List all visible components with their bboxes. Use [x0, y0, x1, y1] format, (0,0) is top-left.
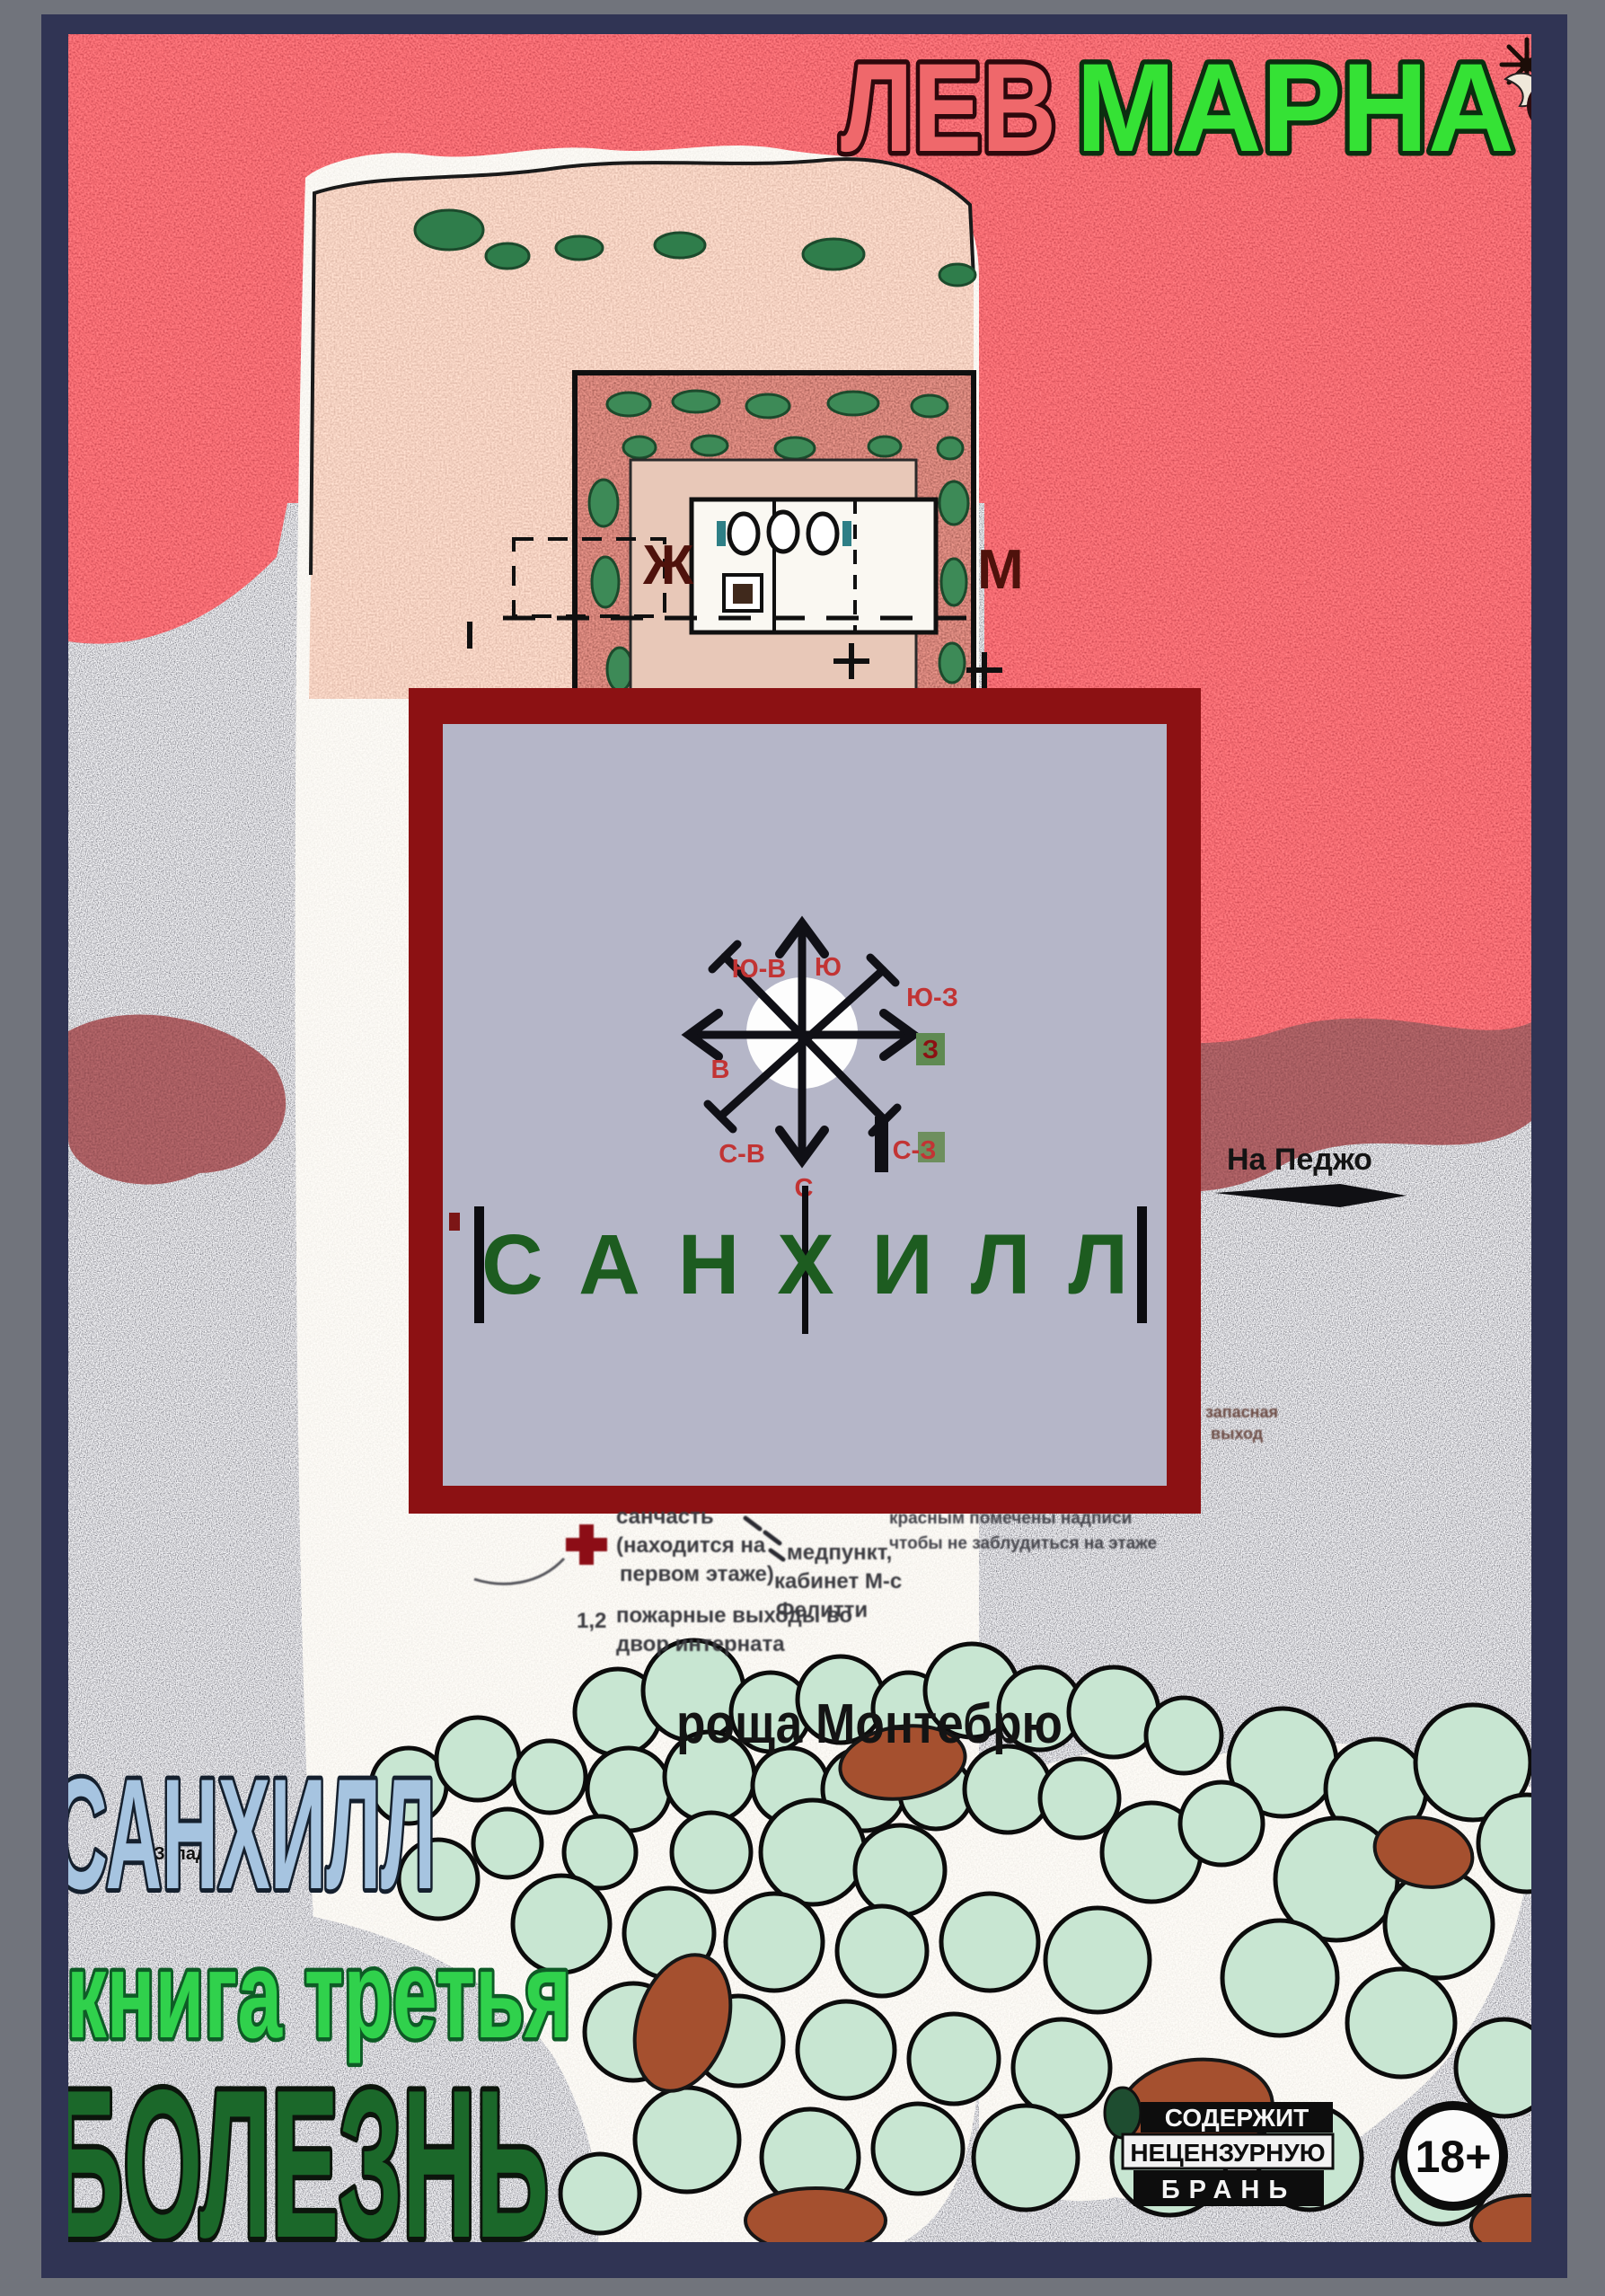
compass-label-se: Ю-З — [906, 984, 958, 1012]
age-badge: 18+ — [1403, 2106, 1504, 2206]
age-badge-label: 18+ — [1415, 2132, 1492, 2182]
legend-line: санчасть — [616, 1505, 714, 1529]
compass-label-sw: Ю-В — [732, 955, 787, 984]
legend-line: запасная — [1205, 1403, 1278, 1421]
legend-line: чтобы не заблудиться на этаже — [889, 1534, 1157, 1553]
legend-line: медпункт, — [787, 1541, 892, 1565]
compass-label-e: В — [711, 1055, 730, 1084]
tree-blob — [1105, 2088, 1141, 2138]
compass-label-s: Ю — [815, 953, 842, 982]
compass-label-ne: С-В — [719, 1140, 765, 1169]
legend-line: кабинет М-с — [774, 1569, 902, 1594]
legend-line: двор интерната — [616, 1632, 785, 1656]
legend-line: 1,2 — [577, 1609, 606, 1633]
grove-label: роща Монтебрю — [676, 1693, 1063, 1755]
warning-line-3: БРАНЬ — [1161, 2176, 1296, 2204]
plan-women-label: Ж — [642, 534, 694, 596]
legend-line: Фелитти — [776, 1598, 868, 1622]
author-last-name: МАРНА — [1076, 37, 1514, 178]
cover-title: САНХИЛЛ — [51, 1747, 436, 1922]
cover-series: книга третья — [66, 1926, 571, 2064]
warning-line-2: НЕЦЕНЗУРНУЮ — [1130, 2139, 1325, 2167]
compass-label-w: З — [922, 1036, 939, 1064]
plan-men-label: М — [977, 539, 1024, 601]
compass-label-nw: С-З — [893, 1136, 937, 1165]
legend-line: первом этаже) — [620, 1562, 774, 1586]
legend-line: красным помечены надписи — [889, 1509, 1132, 1528]
author-first-name: ЛЕВ — [841, 37, 1056, 178]
book-cover: Ж М — [0, 0, 1605, 2296]
toilet-fixtures — [729, 512, 837, 553]
overlay-square: Ю-В Ю Ю-З В С-В С-З С З САНХИЛЛ — [409, 688, 1201, 1514]
pedjo-label: На Педжо — [1227, 1143, 1372, 1177]
warning-badge: СОДЕРЖИТ НЕЦЕНЗУРНУЮ БРАНЬ — [1123, 2102, 1333, 2206]
warning-line-1: СОДЕРЖИТ — [1165, 2104, 1309, 2132]
legend-line: выход — [1211, 1425, 1264, 1443]
legend-line: (находится на — [616, 1533, 766, 1558]
